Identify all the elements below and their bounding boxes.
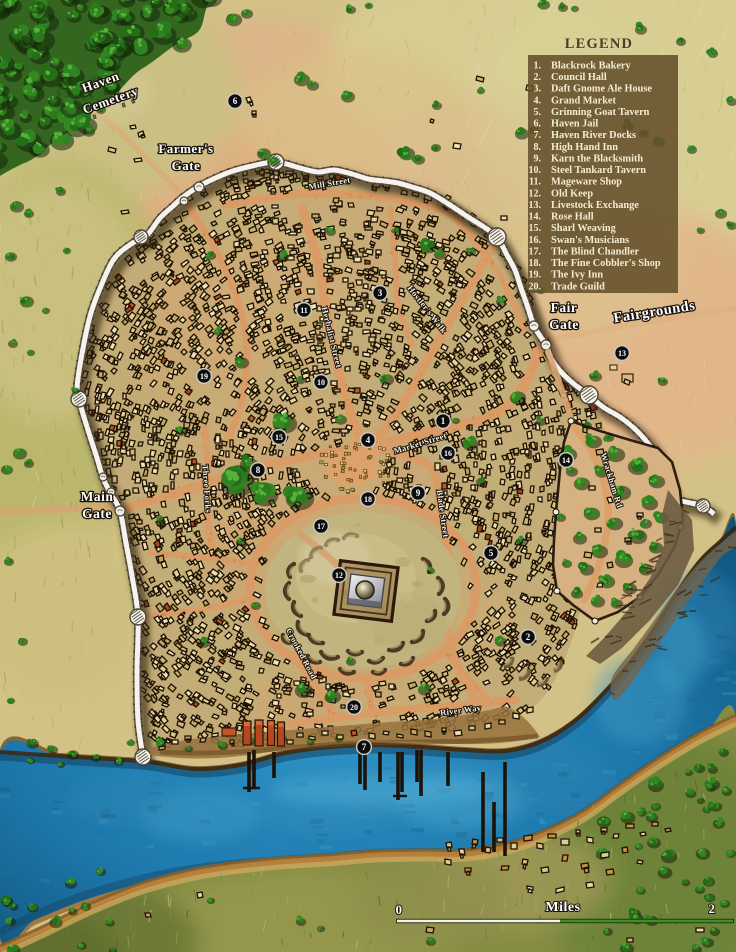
svg-text:Gate: Gate (82, 506, 112, 521)
svg-text:4: 4 (366, 435, 371, 445)
svg-text:The Blind Chandler: The Blind Chandler (551, 246, 640, 257)
svg-text:Grinning Goat Tavern: Grinning Goat Tavern (551, 107, 650, 118)
svg-text:1: 1 (441, 416, 446, 426)
svg-text:13.: 13. (529, 200, 542, 211)
svg-text:The Fine Cobbler's Shop: The Fine Cobbler's Shop (551, 258, 661, 269)
svg-text:Karn the Blacksmith: Karn the Blacksmith (551, 154, 643, 165)
svg-text:15.: 15. (529, 223, 542, 234)
svg-text:1.: 1. (534, 61, 542, 72)
svg-text:3.: 3. (534, 84, 542, 95)
svg-text:17.: 17. (529, 246, 542, 257)
svg-text:Grand Market: Grand Market (551, 95, 616, 106)
svg-text:0: 0 (396, 902, 403, 917)
svg-text:Trade Guild: Trade Guild (551, 281, 605, 292)
svg-text:9.: 9. (534, 154, 542, 165)
svg-text:Fair: Fair (551, 300, 578, 315)
svg-text:17: 17 (317, 522, 325, 531)
svg-text:9: 9 (416, 488, 421, 498)
svg-text:11: 11 (300, 306, 308, 315)
svg-text:11.: 11. (529, 177, 541, 188)
svg-text:8: 8 (256, 465, 261, 475)
svg-text:Blackrock Bakery: Blackrock Bakery (551, 61, 631, 72)
svg-text:18.: 18. (529, 258, 542, 269)
svg-text:4.: 4. (534, 95, 542, 106)
svg-text:Gate: Gate (549, 317, 579, 332)
svg-text:5.: 5. (534, 107, 542, 118)
svg-text:Daft Gnome Ale House: Daft Gnome Ale House (551, 84, 652, 95)
svg-text:2: 2 (526, 632, 531, 642)
svg-text:7: 7 (362, 742, 367, 752)
svg-text:12: 12 (335, 571, 343, 580)
svg-text:Council Hall: Council Hall (551, 72, 607, 83)
svg-text:Mageware Shop: Mageware Shop (551, 177, 622, 188)
svg-text:Haven Jail: Haven Jail (551, 119, 598, 130)
svg-text:16: 16 (444, 449, 452, 458)
svg-text:High Hand Inn: High Hand Inn (551, 142, 618, 153)
svg-text:16.: 16. (529, 235, 542, 246)
svg-text:6.: 6. (534, 119, 542, 130)
svg-text:Sharl Weaving: Sharl Weaving (551, 223, 617, 234)
svg-text:Main: Main (81, 489, 114, 504)
svg-text:Farmer's: Farmer's (158, 141, 213, 156)
svg-text:Old Keep: Old Keep (551, 188, 593, 199)
svg-text:19: 19 (200, 372, 208, 381)
svg-text:The Ivy Inn: The Ivy Inn (551, 270, 603, 281)
svg-text:LEGEND: LEGEND (565, 36, 633, 52)
svg-text:2.: 2. (534, 72, 542, 83)
svg-text:Livestock Exchange: Livestock Exchange (551, 200, 639, 211)
svg-text:15: 15 (275, 433, 283, 442)
svg-text:18: 18 (364, 495, 372, 504)
svg-text:8.: 8. (534, 142, 542, 153)
svg-text:Miles: Miles (545, 900, 580, 915)
svg-text:10.: 10. (529, 165, 542, 176)
svg-text:19.: 19. (529, 270, 542, 281)
svg-text:Haven River Docks: Haven River Docks (551, 130, 636, 141)
svg-text:Gate: Gate (172, 158, 201, 173)
svg-text:2: 2 (709, 901, 716, 916)
svg-text:13: 13 (618, 349, 626, 358)
svg-text:Steel Tankard Tavern: Steel Tankard Tavern (551, 165, 646, 176)
svg-text:12.: 12. (529, 188, 542, 199)
svg-text:14.: 14. (529, 212, 542, 223)
svg-text:6: 6 (233, 96, 238, 106)
svg-text:20: 20 (350, 703, 358, 712)
svg-text:10: 10 (317, 378, 325, 387)
svg-text:7.: 7. (534, 130, 542, 141)
svg-text:Swan's Musicians: Swan's Musicians (551, 235, 629, 246)
svg-text:5: 5 (489, 548, 494, 558)
svg-text:3: 3 (378, 288, 383, 298)
svg-text:Rose Hall: Rose Hall (551, 212, 594, 223)
svg-text:20.: 20. (529, 281, 542, 292)
svg-text:14: 14 (562, 456, 570, 465)
